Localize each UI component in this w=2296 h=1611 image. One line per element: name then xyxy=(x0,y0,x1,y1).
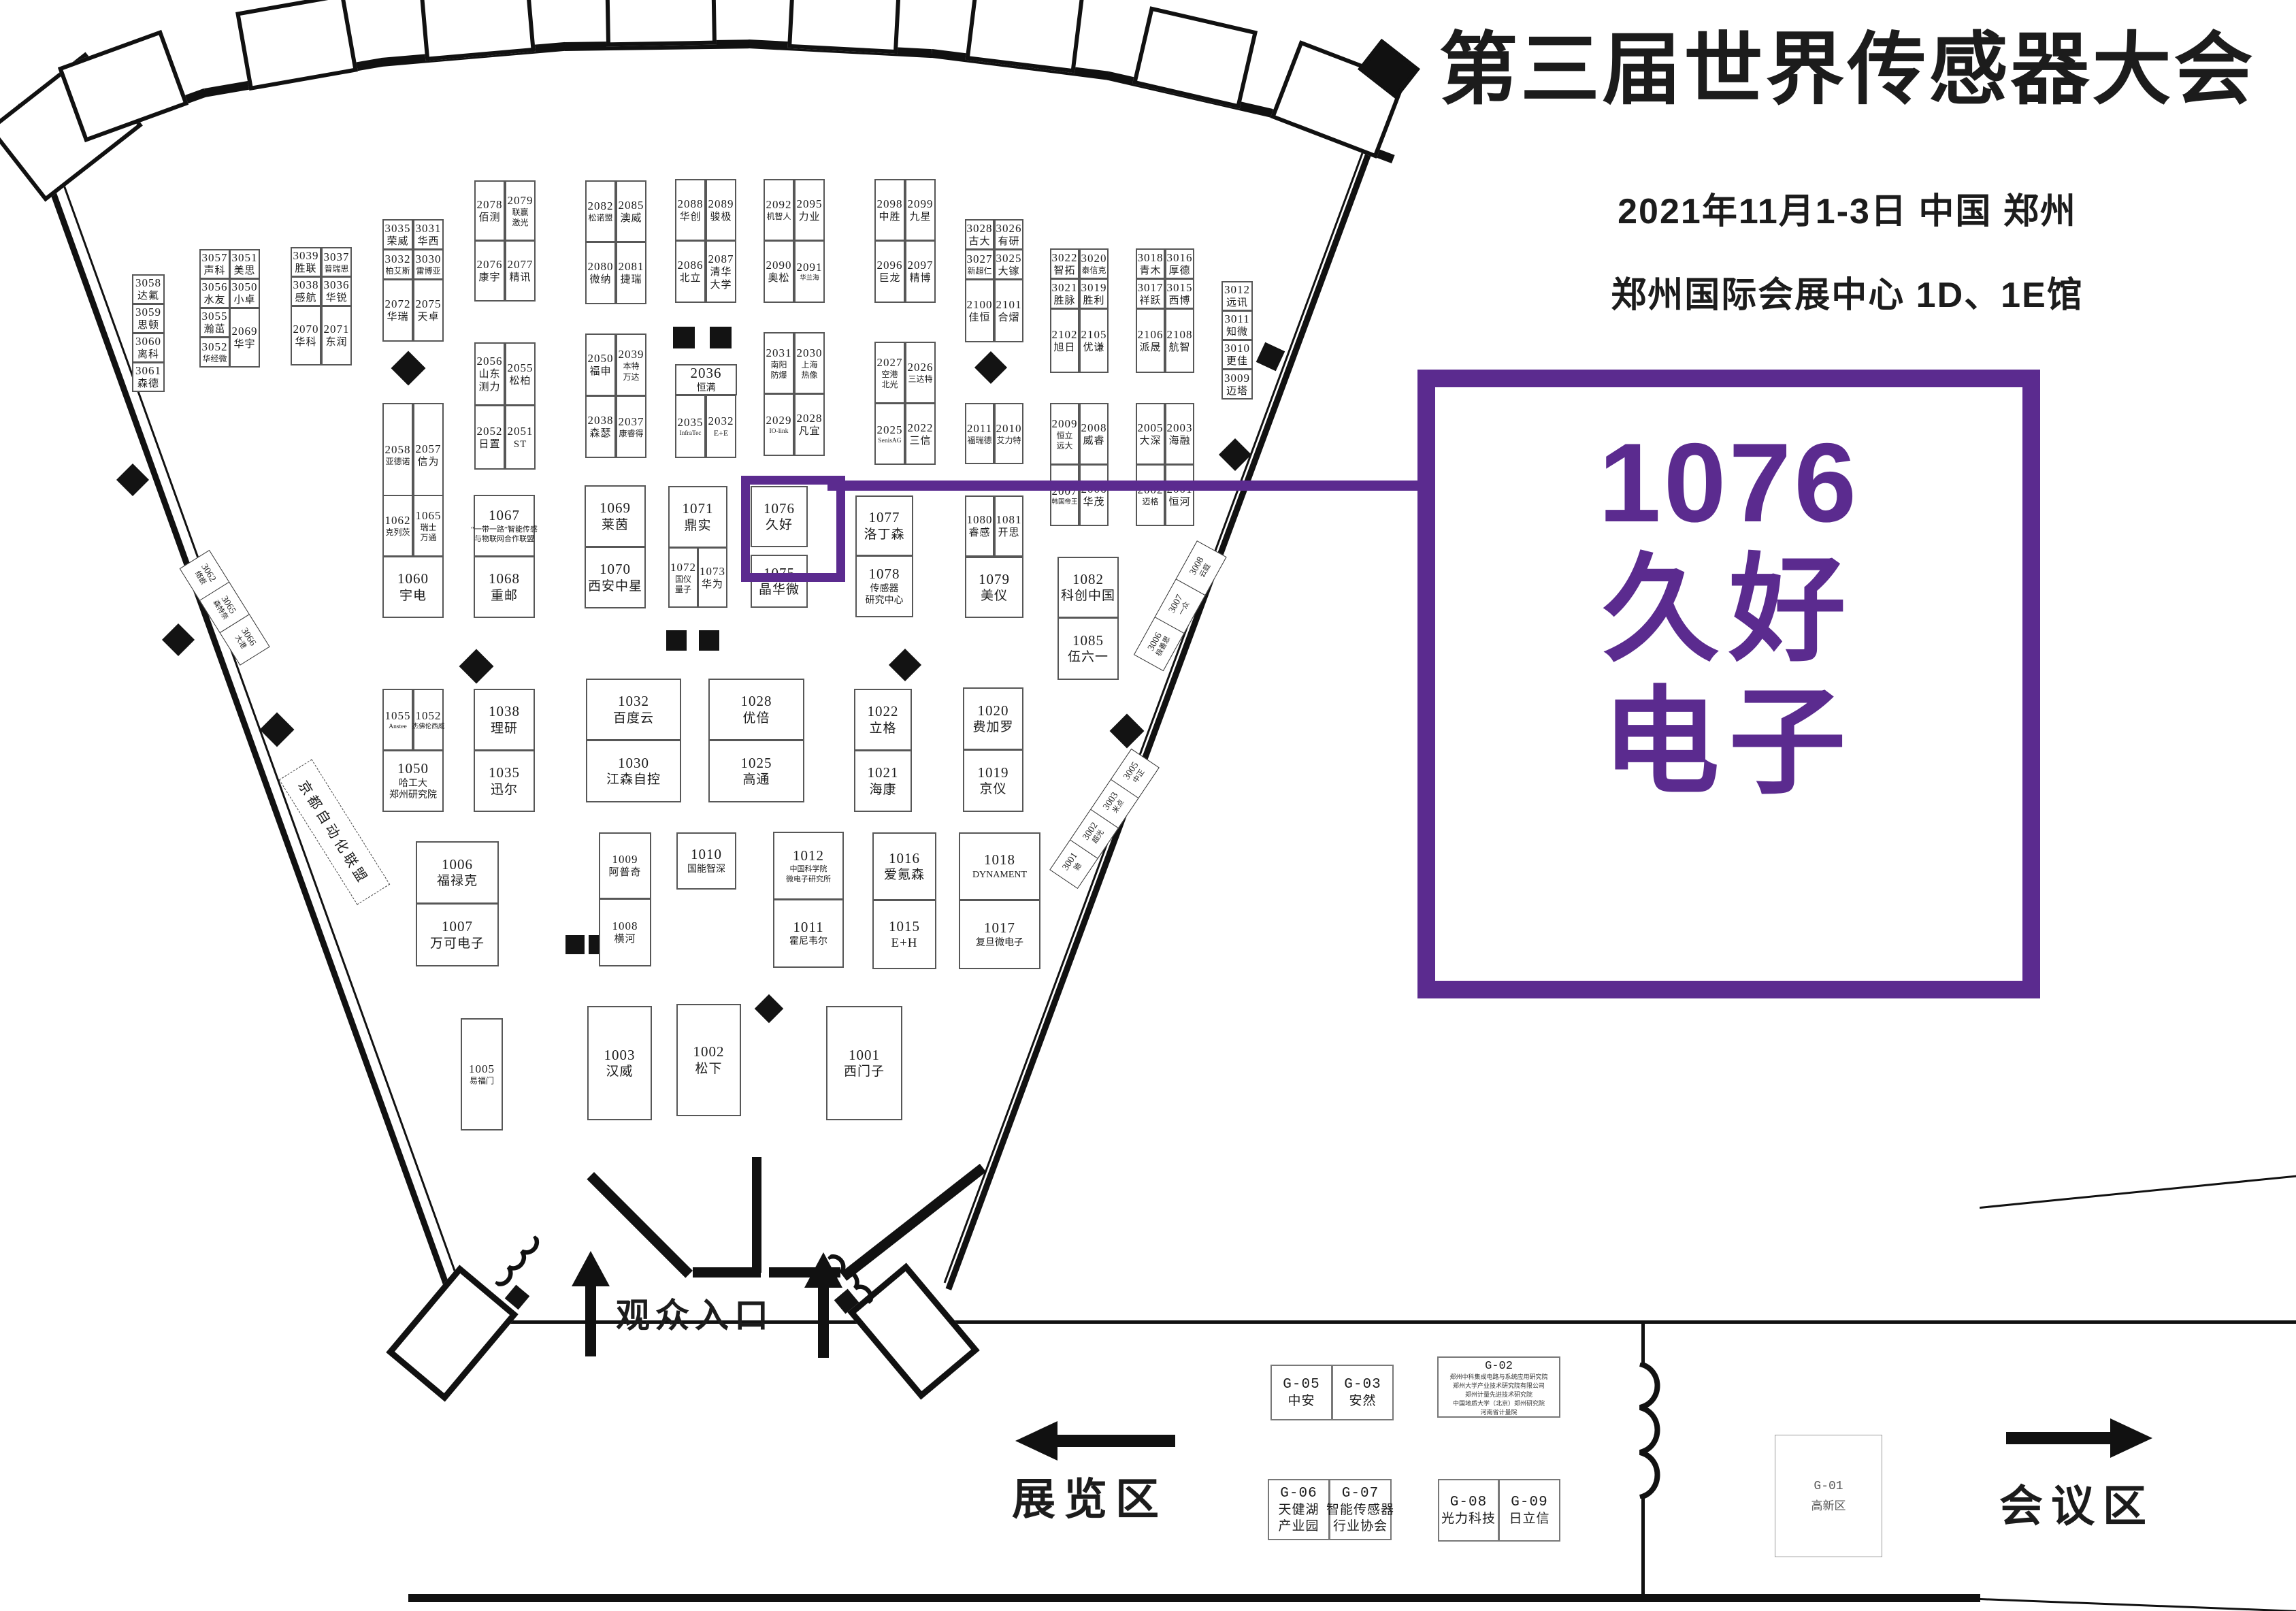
booth-number: 3039 xyxy=(293,249,319,262)
perimeter-room xyxy=(1132,6,1258,108)
tenant-line: 郑州大学产业技术研究院有限公司 xyxy=(1439,1382,1559,1390)
booth-name: 微电子研究所 xyxy=(786,875,831,883)
pillar xyxy=(755,994,783,1023)
wall-segment xyxy=(1980,1598,2296,1611)
booth-name: 华茂 xyxy=(1083,497,1104,508)
booth-1078: 1078传感器研究中心 xyxy=(855,555,913,617)
booth-number: 3011 xyxy=(1224,312,1249,325)
booth-name: 精讯 xyxy=(509,272,531,284)
booth-number: 3055 xyxy=(202,310,228,323)
booth-3058: 3058达氟 xyxy=(132,274,165,304)
booth-name: 安然 xyxy=(1349,1394,1376,1408)
highlight-connector-line xyxy=(827,481,1417,491)
booth-name: 康宇 xyxy=(478,272,500,284)
booth-number: G-03 xyxy=(1344,1377,1381,1393)
tenant-line: 中国地质大学（北京）郑州研究院 xyxy=(1439,1399,1559,1408)
booth-number: 2051 xyxy=(508,425,534,438)
booth-1082: 1082科创中国 xyxy=(1057,557,1119,618)
booth-name: 联赢 xyxy=(512,208,528,217)
booth-2025: 2025SenisAG xyxy=(874,403,905,465)
booth-name: 理研 xyxy=(491,721,518,736)
booth-2005: 2005大深 xyxy=(1136,403,1165,465)
booth-number: 2082 xyxy=(588,199,614,212)
booth-1020: 1020费加罗 xyxy=(963,687,1023,750)
booth-number: 1019 xyxy=(978,765,1009,781)
booth-1009: 1009阿普奇 xyxy=(599,832,651,899)
tenant-line: 郑州计量先进技术研究院 xyxy=(1439,1390,1559,1399)
booth-name: 宇电 xyxy=(399,589,427,603)
booth-3025: 3025大镓 xyxy=(994,249,1023,280)
booth-name: 测力 xyxy=(478,382,500,393)
booth-2056: 2056山东测力 xyxy=(474,342,505,406)
booth-name: 青木 xyxy=(1139,265,1161,277)
booth-number: 2003 xyxy=(1167,421,1193,434)
booth-3019: 3019胜利 xyxy=(1079,278,1109,309)
booth-name: 知微 xyxy=(1226,327,1248,338)
booth-name: 合熠 xyxy=(998,312,1019,324)
booth-number: 2031 xyxy=(766,346,792,359)
booth-number: 2101 xyxy=(996,298,1022,311)
wall-segment xyxy=(1641,1323,1645,1367)
booth-name: 华为 xyxy=(702,579,723,591)
booth-number: 3056 xyxy=(202,280,228,293)
booth-2007: 2007韩国帝王 xyxy=(1050,464,1079,526)
booth-2088: 2088华创 xyxy=(675,179,706,241)
booth-2095: 2095力业 xyxy=(794,179,825,241)
booth-name: 汉威 xyxy=(606,1064,633,1079)
booth-number: 2025 xyxy=(877,423,903,436)
booth-number: 3030 xyxy=(416,253,442,265)
booth-name: 大镓 xyxy=(998,266,1019,278)
booth-name: 森德 xyxy=(137,378,159,390)
booth-name: “一带一路”智能传感 xyxy=(471,525,538,534)
booth-number: 2071 xyxy=(324,323,350,336)
booth-name: 迈格 xyxy=(1142,498,1158,506)
booth-name: 捷瑞 xyxy=(620,274,642,286)
booth-name: 光力科技 xyxy=(1441,1512,1496,1526)
wall-segment xyxy=(693,1267,761,1278)
booth-number: 3031 xyxy=(416,222,442,235)
booth-number: 2097 xyxy=(908,259,934,272)
booth-name: 松下 xyxy=(695,1062,722,1076)
booth-number: 2075 xyxy=(416,297,442,310)
perimeter-room xyxy=(605,0,717,46)
booth-name: 福禄克 xyxy=(437,874,478,888)
booth-name: 雷博亚 xyxy=(416,267,440,276)
booth-G-03: G-03安然 xyxy=(1332,1365,1394,1420)
booth-name: 高通 xyxy=(742,772,770,787)
booth-1025: 1025高通 xyxy=(708,740,804,802)
booth-number: 1025 xyxy=(741,755,772,772)
booth-number: 3025 xyxy=(996,252,1022,265)
booth-number: 3018 xyxy=(1138,251,1164,264)
booth-2037: 2037康睿得 xyxy=(616,395,646,458)
booth-3051: 3051美思 xyxy=(229,249,260,279)
booth-name: 东润 xyxy=(325,337,347,348)
booth-name: 西安中星 xyxy=(588,579,642,593)
booth-number: G-07 xyxy=(1342,1486,1379,1502)
booth-name: 伍六一 xyxy=(1068,650,1109,664)
booth-name: 研究中心 xyxy=(866,596,904,606)
booth-name: 华经微 xyxy=(202,355,227,363)
booth-2031: 2031南阳防爆 xyxy=(764,332,794,394)
booth-number: G-02 xyxy=(1439,1360,1559,1373)
booth-name: 微纳 xyxy=(589,274,611,286)
booth-2027: 2027空港北光 xyxy=(874,342,905,404)
booth-3061: 3061森德 xyxy=(132,362,165,392)
booth-2077: 2077精讯 xyxy=(505,240,536,302)
booth-1079: 1079美仪 xyxy=(965,557,1023,618)
booth-1016: 1016爱氪森 xyxy=(872,832,936,900)
booth-number: 2011 xyxy=(967,422,992,435)
booth-number: 1080 xyxy=(967,513,993,526)
booth-name: 华兰海 xyxy=(800,275,819,282)
booth-name: 克列茨 xyxy=(385,528,410,537)
booth-name: 骏极 xyxy=(710,212,732,223)
booth-name: 高新区 xyxy=(1811,1496,1846,1513)
booth-2035: 2035InfraTec xyxy=(675,395,706,458)
booth-number: 1068 xyxy=(489,571,520,587)
booth-1012: 1012中国科学院微电子研究所 xyxy=(773,832,844,900)
booth-2076: 2076康宇 xyxy=(474,240,505,302)
booth-1065: 1065瑞士万通 xyxy=(413,495,444,557)
booth-name: 瀚茁 xyxy=(203,324,225,336)
booth-number: 1073 xyxy=(700,565,725,578)
booth-number: 3020 xyxy=(1081,252,1107,265)
booth-number: 2092 xyxy=(766,198,792,211)
booth-name: 行业协会 xyxy=(1333,1519,1388,1533)
booth-name: 胜联 xyxy=(295,263,316,275)
booth-number: 2056 xyxy=(477,355,503,368)
callout-name-line2: 电子 xyxy=(1603,681,1856,804)
booth-name: 国能智深 xyxy=(687,864,725,875)
booth-number: 2086 xyxy=(678,259,704,272)
pillar xyxy=(116,463,149,496)
booth-name: 智拓 xyxy=(1053,265,1075,277)
booth-number: 1012 xyxy=(793,848,824,864)
booth-name: 江森自控 xyxy=(606,772,661,787)
booth-number: 2089 xyxy=(708,197,734,210)
booth-name: 柏艾斯 xyxy=(385,267,410,276)
booth-number: 3059 xyxy=(135,306,161,319)
booth-name: 艾力特 xyxy=(996,436,1021,445)
booth-name: 松柏 xyxy=(509,376,531,387)
booth-number: 2039 xyxy=(619,348,644,361)
booth-2100: 2100佳恒 xyxy=(965,279,994,342)
booth-1032: 1032百度云 xyxy=(586,679,681,741)
booth-3018: 3018青木 xyxy=(1136,248,1165,279)
booth-2038: 2038森瑟 xyxy=(585,395,616,458)
booth-number: 3057 xyxy=(202,251,228,264)
booth-number: 3022 xyxy=(1052,251,1078,264)
tenant-line: 郑州中科集成电路与系统应用研究院 xyxy=(1439,1373,1559,1382)
pillar xyxy=(710,327,732,348)
booth-1077: 1077洛丁森 xyxy=(855,495,913,556)
pillar xyxy=(459,649,494,684)
booth-name: 易福门 xyxy=(470,1077,494,1086)
booth-2098: 2098中胜 xyxy=(874,179,905,241)
booth-name: 威睿 xyxy=(1083,436,1104,447)
booth-2097: 2097精博 xyxy=(905,240,936,303)
booth-name: 产业园 xyxy=(1278,1519,1319,1533)
pillar xyxy=(162,623,195,656)
booth-number: 2072 xyxy=(385,297,411,310)
booth-name: 感航 xyxy=(295,293,316,304)
booth-number: 1069 xyxy=(600,500,631,517)
booth-name: 大深 xyxy=(1139,436,1161,447)
booth-number: 1067 xyxy=(489,508,520,524)
booth-2009: 2009恒立远大 xyxy=(1050,403,1079,465)
booth-number: 3026 xyxy=(996,222,1022,235)
booth-name: 重邮 xyxy=(491,589,518,603)
booth-3020: 3020泰信克 xyxy=(1079,248,1109,279)
booth-number: 2009 xyxy=(1052,417,1078,430)
booth-name: 康睿得 xyxy=(619,429,643,438)
booth-number: 3017 xyxy=(1138,281,1164,294)
booth-number: 2090 xyxy=(766,259,792,272)
pillar xyxy=(565,935,585,954)
booth-name: 杰佛伦西威 xyxy=(412,723,445,731)
booth-1050: 1050哈工大郑州研究院 xyxy=(382,750,444,812)
booth-name: 迈塔 xyxy=(1226,386,1248,397)
booth-name: 天健湖 xyxy=(1278,1503,1319,1517)
booth-2086: 2086北立 xyxy=(675,240,706,303)
booth-2082: 2082松诺盟 xyxy=(585,180,616,242)
visitor-entrance-label: 观众入口 xyxy=(616,1288,774,1337)
booth-name: 日置 xyxy=(478,439,500,451)
booth-number: 3050 xyxy=(232,280,258,293)
booth-number: 1007 xyxy=(442,919,473,935)
exhibition-area-label: 展览区 xyxy=(1012,1465,1167,1527)
perimeter-room xyxy=(787,0,902,54)
booth-1010: 1010国能智深 xyxy=(676,832,736,890)
booth-3011: 3011知微 xyxy=(1221,310,1253,340)
booth-number: 3027 xyxy=(967,253,993,265)
booth-2091: 2091华兰海 xyxy=(794,240,825,303)
booth-number: 3035 xyxy=(385,222,411,235)
booth-2001: 2001恒河 xyxy=(1165,464,1194,526)
booth-name: 中国科学院 xyxy=(790,865,827,873)
booth-name: 南阳 xyxy=(770,361,787,370)
booth-name: 水友 xyxy=(203,295,225,306)
booth-2055: 2055松柏 xyxy=(505,342,536,406)
header: 第三届世界传感器大会 2021年11月1-3日 中国 郑州 郑州国际会展中心 1… xyxy=(1398,0,2296,317)
pillar xyxy=(889,649,921,681)
booth-name: 泰信克 xyxy=(1081,266,1106,275)
booth-name: 莱茵 xyxy=(602,518,629,532)
booth-number: 2035 xyxy=(678,416,704,429)
booth-3009: 3009迈塔 xyxy=(1221,369,1253,400)
booth-2051: 2051ST xyxy=(505,405,536,470)
door-spring-icon xyxy=(1632,1363,1664,1499)
booth-name: 小卓 xyxy=(233,295,255,306)
booth-number: 2098 xyxy=(877,197,903,210)
booth-2079: 2079联赢激光 xyxy=(505,180,536,241)
booth-number: 1071 xyxy=(683,501,714,517)
booth-number: 2037 xyxy=(619,415,644,428)
tilted-booth-group: 3062络嵌3065森特奈3066大港 xyxy=(180,551,272,668)
booth-2003: 2003海融 xyxy=(1165,403,1194,465)
booth-number: 2026 xyxy=(908,361,934,374)
booth-name: 传感器 xyxy=(870,584,899,595)
booth-name: 澳威 xyxy=(620,213,642,225)
booth-number: 2100 xyxy=(967,298,993,311)
booth-name: 胜利 xyxy=(1083,295,1104,307)
booth-number: 3051 xyxy=(232,251,258,264)
booth-name: 恒满 xyxy=(697,383,716,394)
pillar xyxy=(666,630,687,651)
booth-name: 思顿 xyxy=(137,320,159,331)
booth-number: 2027 xyxy=(877,356,903,369)
booth-G-01: G-01 高新区 xyxy=(1775,1435,1882,1557)
booth-name: SenisAG xyxy=(878,438,901,445)
booth-name: 美思 xyxy=(233,265,255,277)
booth-name: 巨龙 xyxy=(879,273,900,284)
tenant-line: 河南省计量院 xyxy=(1439,1408,1559,1417)
booth-number: 3021 xyxy=(1052,281,1078,294)
kyoto-sign-label: 京都自动化联盟 xyxy=(295,777,374,888)
booth-name: 鼎实 xyxy=(684,519,711,533)
booth-name: 与物联网合作联盟 xyxy=(474,535,534,543)
booth-1006: 1006福禄克 xyxy=(416,841,499,904)
booth-name: 中安 xyxy=(1288,1394,1315,1408)
callout-booth-number: 1076 xyxy=(1598,427,1859,539)
booth-1015: 1015E+H xyxy=(872,900,936,969)
booth-G-09: G-09日立信 xyxy=(1498,1479,1560,1542)
booth-number: 2080 xyxy=(588,260,614,273)
booth-2058: 2058亚德诺 xyxy=(382,403,413,507)
booth-name: 横河 xyxy=(614,934,636,945)
booth-name: 日立信 xyxy=(1509,1512,1549,1526)
booth-number: 1082 xyxy=(1072,572,1104,588)
booth-G-05: G-05中安 xyxy=(1270,1365,1332,1420)
booth-name: 胜脉 xyxy=(1053,295,1075,307)
booth-1081: 1081开思 xyxy=(994,495,1023,557)
booth-name: 旭日 xyxy=(1053,342,1075,354)
booth-number: 2106 xyxy=(1138,328,1164,341)
booth-2002: 2002迈格 xyxy=(1136,464,1165,526)
pillar xyxy=(673,327,695,348)
booth-name: 九星 xyxy=(909,212,931,223)
booth-name: 华锐 xyxy=(325,293,347,304)
pillar xyxy=(391,351,426,386)
booth-number: 3015 xyxy=(1167,281,1193,294)
booth-3028: 3028古大 xyxy=(965,219,994,250)
booth-2032: 2032E+E xyxy=(706,395,736,458)
booth-name: 三信 xyxy=(909,436,931,447)
left-arrow-icon xyxy=(1015,1420,1175,1462)
booth-number: 2029 xyxy=(766,414,792,427)
booth-2078: 2078佰测 xyxy=(474,180,505,241)
booth-name: 郑州研究院 xyxy=(389,790,437,801)
booth-name: 量子 xyxy=(675,585,691,594)
booth-name: 更佳 xyxy=(1226,356,1248,368)
booth-number: 1035 xyxy=(489,765,520,781)
wall-segment xyxy=(1980,1175,2296,1209)
booth-name: 信为 xyxy=(417,457,439,468)
booth-number: 2076 xyxy=(477,258,503,271)
booth-2036: 2036恒满 xyxy=(675,364,737,395)
event-date: 2021年11月1-3日 中国 郑州 xyxy=(1398,182,2296,233)
pillar xyxy=(1256,342,1285,372)
booth-3037: 3037普瑞思 xyxy=(321,247,352,277)
booth-1018: 1018DYNAMENT xyxy=(959,832,1040,900)
booth-number: 2102 xyxy=(1052,328,1078,341)
booth-name: Anstee xyxy=(389,723,406,731)
booth-3039: 3039胜联 xyxy=(291,247,321,277)
booth-name: 国仪 xyxy=(675,575,691,584)
booth-name: 大学 xyxy=(710,280,732,291)
booth-2010: 2010艾力特 xyxy=(994,403,1023,464)
booth-number: 3060 xyxy=(135,335,161,348)
booth-name: 荣威 xyxy=(387,236,408,248)
booth-2011: 2011福瑞德 xyxy=(965,403,994,464)
booth-2080: 2080微纳 xyxy=(585,242,616,304)
booth-number: 3032 xyxy=(385,253,411,265)
conference-area-label: 会议区 xyxy=(1999,1471,2154,1534)
booth-name: 恒立 xyxy=(1056,432,1072,440)
booth-1021: 1021海康 xyxy=(854,750,912,812)
booth-name: 复旦微电子 xyxy=(976,938,1023,949)
booth-2050: 2050福申 xyxy=(585,333,616,396)
booth-name: 费加罗 xyxy=(972,720,1013,734)
booth-name: 古大 xyxy=(968,236,990,248)
booth-number: 1008 xyxy=(612,920,638,932)
booth-number: 2005 xyxy=(1138,421,1164,434)
booth-name: 华瑞 xyxy=(387,312,408,323)
booth-name: IO-link xyxy=(770,428,789,436)
booth-name: 达氟 xyxy=(137,291,159,302)
booth-number: G-09 xyxy=(1511,1495,1547,1511)
booth-1019: 1019京仪 xyxy=(963,749,1023,812)
booth-number: 1018 xyxy=(984,852,1015,868)
booth-3010: 3010更佳 xyxy=(1221,340,1253,370)
booth-name: 万达 xyxy=(623,373,639,382)
booth-name: 华科 xyxy=(295,337,316,348)
booth-number: 2038 xyxy=(588,414,614,427)
booth-2105: 2105优谦 xyxy=(1079,308,1109,373)
booth-name: 防爆 xyxy=(770,371,787,380)
booth-number: 2091 xyxy=(797,261,823,274)
booth-2101: 2101合熠 xyxy=(994,279,1023,342)
booth-2030: 2030上海热像 xyxy=(794,332,825,394)
booth-name: 山东 xyxy=(478,369,500,380)
booth-3026: 3026有研 xyxy=(994,219,1023,250)
booth-2092: 2092机智人 xyxy=(764,179,794,241)
booth-3036: 3036华锐 xyxy=(321,276,352,306)
booth-3057: 3057声科 xyxy=(199,249,230,279)
booth-2075: 2075天卓 xyxy=(413,279,444,342)
booth-2081: 2081捷瑞 xyxy=(616,242,646,304)
booth-number: 2069 xyxy=(232,325,258,338)
booth-1038: 1038理研 xyxy=(474,689,535,751)
page-title: 第三届世界传感器大会 xyxy=(1398,5,2296,120)
booth-1017: 1017复旦微电子 xyxy=(959,900,1040,969)
booth-number: 3012 xyxy=(1224,283,1250,296)
booth-name: 机智人 xyxy=(766,212,791,221)
booth-name: 洛丁森 xyxy=(864,527,904,542)
booth-1022: 1022立格 xyxy=(854,689,912,751)
booth-number: 1016 xyxy=(889,851,920,867)
booth-number: 2036 xyxy=(691,365,722,382)
booth-name: 森瑟 xyxy=(589,428,611,440)
booth-name: 热像 xyxy=(801,371,817,380)
up-arrow-icon xyxy=(803,1252,844,1358)
booth-number: 2099 xyxy=(908,197,934,210)
booth-number: 1015 xyxy=(889,919,920,935)
booth-3012: 3012远讯 xyxy=(1221,281,1253,311)
booth-2057: 2057信为 xyxy=(413,403,444,507)
